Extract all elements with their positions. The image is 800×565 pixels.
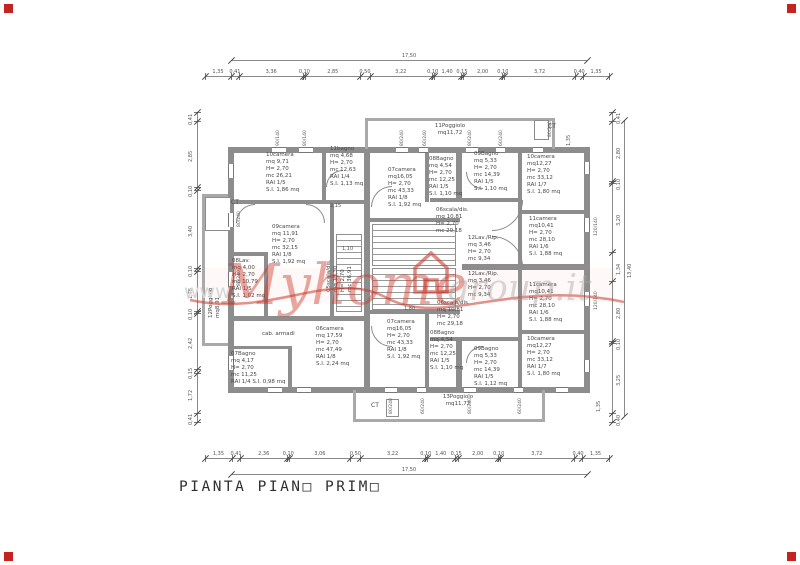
- room-label-line: mc 33,12: [527, 357, 560, 364]
- room-label-line: mq10,41: [529, 223, 562, 230]
- room-label-line: S.I. 1,86 mq: [266, 187, 299, 194]
- room-label-line: 11camera: [529, 216, 562, 223]
- window: [228, 164, 234, 178]
- dimension-line: [205, 76, 609, 77]
- wall-segment: [522, 210, 584, 214]
- room-label-line: 08Bagno: [430, 330, 463, 337]
- dimension-label: 0,41: [228, 451, 244, 457]
- dimension-label: 0,10: [616, 339, 622, 350]
- corner-marker-top-right: [787, 4, 796, 13]
- dimension-label: 0,50: [357, 69, 373, 75]
- watermark: www. Myhome group.it: [182, 240, 632, 325]
- window: [584, 162, 590, 174]
- dimension-label: 2,85: [188, 151, 194, 162]
- balcony-wall: [202, 343, 228, 346]
- room-label-line: mq 11,91: [272, 231, 305, 238]
- room-label-line: cab. armadi: [262, 331, 295, 338]
- room-label-line: mq 5,33: [474, 158, 507, 165]
- dimension-label: 0,40: [571, 69, 587, 75]
- dimension-line: [231, 474, 587, 475]
- room-label-line: H= 2,70: [429, 170, 462, 177]
- room-label-line: H= 2,70: [316, 340, 349, 347]
- room-label-line: 07Bagno: [231, 351, 286, 358]
- window: [228, 213, 234, 227]
- balcony-wall: [542, 390, 545, 421]
- room-08bagno-bottom: 08Bagnomq 4,54H= 2,70mc 12,25RAI 1/5S.I.…: [430, 330, 463, 372]
- room-label-line: 09Bagno: [474, 151, 507, 158]
- room-label-line: H= 2,70: [266, 166, 299, 173]
- room-label-line: 09camera: [272, 224, 305, 231]
- window-size-tag: 60/240: [423, 130, 428, 146]
- room-label-line: RAI 1/5: [430, 358, 463, 365]
- door-arc: [306, 204, 325, 223]
- window-size-tag: 60/240: [499, 130, 504, 146]
- dimension-label: 0,40: [570, 451, 586, 457]
- window: [584, 360, 590, 372]
- room-07camera-bottom: 07cameramq16,05H= 2,70mc 43,33RAI 1/8S.I…: [387, 319, 420, 361]
- room-label-line: mq 4,54: [429, 163, 462, 170]
- room-label-line: 10camera: [527, 154, 560, 161]
- room-label-line: 07camera: [388, 167, 421, 174]
- room-09bagno-top: 09Bagnomq 5,33H= 2,70mc 14,39RAI 1/5S.I.…: [474, 151, 507, 193]
- room-label-line: 08Bagno: [429, 156, 462, 163]
- fixture-box: [534, 120, 549, 140]
- room-label-line: mc 14,39: [474, 172, 507, 179]
- dimension-total: 17,50: [397, 467, 421, 473]
- dimension-tick: [584, 57, 591, 64]
- room-label-line: RAI 1/4 S.I. 0,98 mq: [231, 379, 286, 386]
- room-label-line: mq16,05: [387, 326, 420, 333]
- wall-segment: [425, 314, 429, 390]
- dimension-label: 2,80: [616, 148, 622, 159]
- dimension-label: 3,36: [263, 69, 279, 75]
- room-10camera-tl: 10cameramq 9,71H= 2,70mc 26,21RAI 1/5S.I…: [266, 152, 299, 194]
- window-size-tag: 80/240: [237, 211, 242, 227]
- room-label-line: RAI 1/8: [387, 347, 420, 354]
- balcony-13poggiolo: 13Poggiolomq11,72: [428, 394, 488, 408]
- corner-marker-top-left: [4, 4, 13, 13]
- room-label-line: RAI 1/5: [474, 374, 507, 381]
- room-label-line: H= 2,70: [330, 160, 363, 167]
- room-label-line: mc 47,49: [316, 347, 349, 354]
- window: [297, 387, 311, 393]
- room-label-line: mq16,05: [388, 174, 421, 181]
- window-size-tag: 80/240: [468, 130, 473, 146]
- dimension-label: 3,20: [616, 215, 622, 226]
- room-label-line: RAI 1/7: [527, 364, 560, 371]
- dimension-label: 1,35: [588, 69, 604, 75]
- room-label-line: S.I. 1,10 mq: [430, 365, 463, 372]
- window-size-tag: 60/240: [518, 398, 523, 414]
- dimension-label: 0,10: [491, 451, 507, 457]
- room-label-line: 06scala/dis.: [436, 207, 469, 214]
- window-size-tag: 90/140: [276, 130, 281, 146]
- room-label-line: mc 43,33: [388, 188, 421, 195]
- window: [533, 147, 543, 153]
- dimension-line: [231, 60, 587, 61]
- wall-segment: [228, 346, 292, 349]
- corner-marker-bottom-left: [4, 552, 13, 561]
- room-label-line: S.I. 1,13 mq: [330, 181, 363, 188]
- room-label-line: mq 10,81: [436, 214, 469, 221]
- room-label-line: mc 43,33: [387, 340, 420, 347]
- dimension-label: 1,72: [188, 390, 194, 401]
- dimension-tick: [621, 413, 628, 420]
- corner-marker-bottom-right: [787, 552, 796, 561]
- room-label-line: S.I. 2,24 mq: [316, 361, 349, 368]
- dimension-label: 0,50: [347, 451, 363, 457]
- room-label-line: S.I. 1,92 mq: [388, 202, 421, 209]
- room-label-line: H= 2,70: [474, 165, 507, 172]
- dimension-label: 2,15: [330, 203, 341, 209]
- room-label-line: mq12,27: [527, 161, 560, 168]
- dimension-label: 3,72: [529, 451, 545, 457]
- window: [417, 387, 426, 393]
- window: [419, 147, 428, 153]
- dimension-label: 0,10: [495, 69, 511, 75]
- room-label-line: mq12,27: [527, 343, 560, 350]
- room-cab-armadi: cab. armadi: [262, 331, 295, 338]
- room-label-line: 11Poggiolo: [420, 123, 480, 130]
- room-07bagno: 07Bagnomq 4,17H= 2,70mc 11,25RAI 1/4 S.I…: [231, 351, 286, 386]
- window-size-tag: 80/240: [389, 398, 394, 414]
- room-label-line: mq 4,17: [231, 358, 286, 365]
- room-label-line: S.I. 1,10 mq: [474, 186, 507, 193]
- room-label-line: S.I. 1,80 mq: [527, 189, 560, 196]
- room-label-line: mc 14,39: [474, 367, 507, 374]
- room-label-line: RAI 1/5: [266, 180, 299, 187]
- balcony-wall: [353, 390, 356, 421]
- dimension-total: 17,50: [397, 53, 421, 59]
- room-label-line: S.I. 1,92 mq: [387, 354, 420, 361]
- window-size-tag: 60/240: [421, 398, 426, 414]
- room-label-line: 13Poggiolo: [428, 394, 488, 401]
- room-label-line: H= 2,70: [388, 181, 421, 188]
- dimension-label: 3,40: [188, 226, 194, 237]
- window: [556, 387, 568, 393]
- dimension-label: 1,35: [588, 451, 604, 457]
- room-label-line: mq 5,33: [474, 353, 507, 360]
- room-label-line: RAI 1/8: [388, 195, 421, 202]
- dimension-label: 0,10: [188, 185, 194, 196]
- dimension-label: 0,15: [454, 69, 470, 75]
- window: [385, 387, 397, 393]
- room-label-line: H= 2,70: [436, 221, 469, 228]
- dimension-line: [205, 458, 609, 459]
- room-label-line: mc 33,12: [527, 175, 560, 182]
- room-07camera-top: 07cameramq16,05H= 2,70mc 43,33RAI 1/8S.I…: [388, 167, 421, 209]
- watermark-suffix: group.it: [446, 268, 592, 309]
- window-size-tag: 80/240: [400, 130, 405, 146]
- room-label-line: RAI 1/7: [527, 182, 560, 189]
- room-label-line: mq 4,68: [330, 153, 363, 160]
- dimension-label: 0,15: [448, 451, 464, 457]
- dimension-label: 0,10: [280, 451, 296, 457]
- room-label-line: mc 11,25: [231, 372, 286, 379]
- dimension-label: 3,72: [532, 69, 548, 75]
- room-label-line: S.I. 1,10 mq: [429, 191, 462, 198]
- dimension-label: 1,35: [566, 135, 572, 146]
- balcony-wall: [365, 118, 555, 121]
- dimension-label: 0,10: [296, 69, 312, 75]
- room-label-line: 06camera: [316, 326, 349, 333]
- wall-segment: [288, 346, 292, 390]
- window: [396, 147, 408, 153]
- room-label-line: mq 17,59: [316, 333, 349, 340]
- room-11bagno: 11bagnomq 4,68H= 2,70mc 12,63RAI 1/4S.I.…: [330, 146, 363, 188]
- room-label-line: H= 2,70: [529, 230, 562, 237]
- room-label-line: mc 29,18: [436, 228, 469, 235]
- room-label-line: S.I. 1,12 mq: [474, 381, 507, 388]
- ct-label: CT: [231, 199, 239, 206]
- room-label-line: H= 2,70: [527, 350, 560, 357]
- wall-segment: [228, 200, 364, 204]
- dimension-label: 1,40: [439, 69, 455, 75]
- wall-segment: [522, 330, 584, 334]
- ct-label: CT: [371, 402, 379, 409]
- wall-segment: [322, 147, 326, 204]
- room-06scala-top: 06scala/dis.mq 10,81H= 2,70mc 29,18: [436, 207, 469, 235]
- room-label-line: H= 2,70: [474, 360, 507, 367]
- room-label-line: mq11,72: [428, 401, 488, 408]
- dimension-label: 0,41: [188, 414, 194, 425]
- dimension-label: 3,06: [312, 451, 328, 457]
- room-label-line: 10camera: [527, 336, 560, 343]
- room-09bagno-bottom: 09Bagnomq 5,33H= 2,70mc 14,39RAI 1/5S.I.…: [474, 346, 507, 388]
- dimension-label: 3,22: [385, 451, 401, 457]
- dimension-label: 0,10: [616, 179, 622, 190]
- room-label-line: 10camera: [266, 152, 299, 159]
- room-label-line: mc 12,63: [330, 167, 363, 174]
- drawing-title: PIANTA PIAN□ PRIM□: [179, 479, 381, 495]
- dimension-label: 1,35: [596, 401, 602, 412]
- dimension-label: 0,10: [418, 451, 434, 457]
- floor-plan-canvas: 10cameramq 9,71H= 2,70mc 26,21RAI 1/5S.I…: [0, 0, 800, 565]
- room-label-line: RAI 1/5: [474, 179, 507, 186]
- window: [299, 147, 313, 153]
- room-label-line: mq 4,54: [430, 337, 463, 344]
- window-size-tag: 80/240: [468, 398, 473, 414]
- room-10camera-tr: 10cameramq12,27H= 2,70mc 33,12RAI 1/7S.I…: [527, 154, 560, 196]
- dimension-tick: [584, 471, 591, 478]
- dimension-label: 2,00: [475, 69, 491, 75]
- window: [584, 218, 590, 232]
- dimension-label: 3,25: [616, 375, 622, 386]
- room-label-line: 09Bagno: [474, 346, 507, 353]
- balcony-wall: [353, 419, 545, 422]
- wall-segment: [228, 387, 590, 393]
- window-size-tag: 80/240: [548, 121, 553, 137]
- window: [268, 387, 282, 393]
- room-label-line: S.I. 1,80 mq: [527, 371, 560, 378]
- window: [514, 387, 523, 393]
- dimension-label: 3,22: [393, 69, 409, 75]
- dimension-label: 0,41: [227, 69, 243, 75]
- room-label-line: 11bagno: [330, 146, 363, 153]
- dimension-label: 0,41: [188, 114, 194, 125]
- dimension-label: 2,85: [325, 69, 341, 75]
- room-label-line: RAI 1/8: [316, 354, 349, 361]
- room-label-line: mc 12,25: [430, 351, 463, 358]
- room-08bagno-top: 08Bagnomq 4,54H= 2,70mc 12,25RAI 1/5S.I.…: [429, 156, 462, 198]
- dimension-label: 2,36: [256, 451, 272, 457]
- balcony-wall: [365, 118, 368, 149]
- window-size-tag: 120/140: [594, 217, 599, 236]
- window-size-tag: 80/140: [303, 130, 308, 146]
- room-06camera: 06cameramq 17,59H= 2,70mc 47,49RAI 1/8S.…: [316, 326, 349, 368]
- room-label-line: mc 26,21: [266, 173, 299, 180]
- dimension-label: 1,35: [210, 69, 226, 75]
- room-label-line: RAI 1/4: [330, 174, 363, 181]
- dimension-label: 1,40: [433, 451, 449, 457]
- dimension-label: 2,00: [470, 451, 486, 457]
- room-label-line: H= 2,70: [231, 365, 286, 372]
- watermark-brand: Myhome: [221, 253, 467, 318]
- room-label-line: H= 2,70: [430, 344, 463, 351]
- room-label-line: H= 2,70: [527, 168, 560, 175]
- dimension-label: 0,15: [188, 368, 194, 379]
- room-10camera-br: 10cameramq12,27H= 2,70mc 33,12RAI 1/7S.I…: [527, 336, 560, 378]
- dimension-label: 2,42: [188, 338, 194, 349]
- dimension-label: 1,35: [210, 451, 226, 457]
- room-label-line: mc 12,25: [429, 177, 462, 184]
- room-label-line: mq 9,71: [266, 159, 299, 166]
- room-label-line: RAI 1/5: [429, 184, 462, 191]
- room-label-line: H= 2,70: [387, 333, 420, 340]
